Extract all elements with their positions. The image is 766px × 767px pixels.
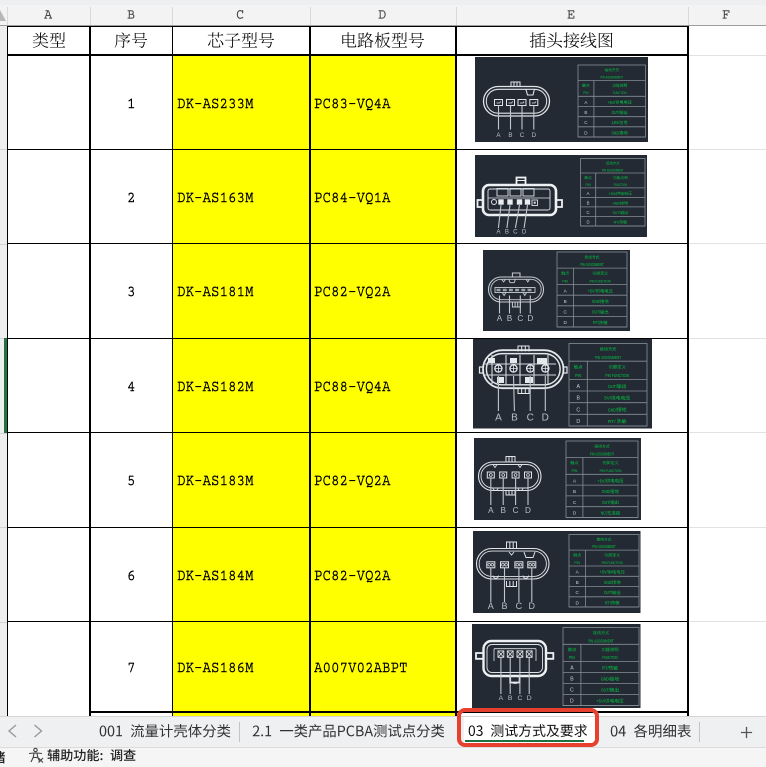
- svg-text:OUT/: OUT/: [613, 210, 621, 215]
- svg-text:B: B: [501, 601, 507, 611]
- svg-text:C: C: [576, 407, 580, 413]
- svg-text:+5V/: +5V/: [596, 699, 605, 704]
- svg-text:C: C: [573, 499, 577, 505]
- svg-text:D: D: [542, 413, 549, 424]
- svg-text:+5V/: +5V/: [600, 569, 609, 574]
- svg-text:PIN: PIN: [574, 560, 580, 564]
- svg-text:GND/: GND/: [608, 407, 617, 413]
- svg-text:A: A: [584, 99, 587, 104]
- svg-text:C: C: [517, 314, 523, 323]
- svg-text:A: A: [488, 601, 494, 611]
- svg-text:B: B: [507, 314, 513, 323]
- svg-text:OUT/: OUT/: [601, 688, 610, 693]
- svg-text:GND/: GND/: [601, 677, 610, 682]
- svg-text:PIN ASSIGNMENT: PIN ASSIGNMENT: [602, 168, 624, 172]
- svg-text:RT/: RT/: [605, 600, 612, 605]
- svg-text:PIN ASSIGNMENT: PIN ASSIGNMENT: [580, 262, 604, 267]
- svg-text:C: C: [564, 310, 568, 315]
- svg-text:B: B: [570, 677, 574, 683]
- svg-text:D: D: [576, 600, 580, 605]
- svg-text:B: B: [576, 396, 580, 402]
- svg-text:RT/: RT/: [614, 220, 620, 225]
- svg-text:PIN FUNCTION: PIN FUNCTION: [602, 560, 623, 564]
- svg-text:D: D: [573, 510, 577, 516]
- svg-text:B: B: [508, 132, 512, 139]
- svg-text:D: D: [564, 320, 568, 325]
- svg-text:D: D: [587, 220, 590, 225]
- svg-text:RT/: RT/: [608, 419, 617, 425]
- svg-text:FUNCTION: FUNCTION: [602, 655, 617, 660]
- svg-text:B: B: [576, 579, 579, 584]
- svg-text:B: B: [587, 201, 590, 206]
- svg-text:FUNCTION: FUNCTION: [614, 183, 627, 187]
- svg-text:D: D: [529, 601, 536, 611]
- svg-text:PIN: PIN: [583, 91, 589, 95]
- svg-text:PIN: PIN: [575, 373, 581, 378]
- svg-text:A: A: [499, 695, 504, 702]
- svg-text:RT/: RT/: [593, 320, 600, 325]
- svg-text:PIN ASSIGNMENT: PIN ASSIGNMENT: [595, 355, 621, 360]
- svg-text:B: B: [508, 695, 513, 702]
- svg-text:FUNCTION: FUNCTION: [613, 91, 627, 95]
- svg-text:PIN ASSIGNMENT: PIN ASSIGNMENT: [590, 451, 614, 456]
- svg-text:OUT/: OUT/: [602, 499, 611, 504]
- svg-text:C: C: [570, 688, 574, 694]
- svg-text:C: C: [587, 210, 590, 215]
- svg-text:5V/: 5V/: [604, 396, 611, 402]
- svg-text:PIN: PIN: [586, 183, 592, 187]
- svg-text:B: B: [564, 299, 567, 304]
- svg-text:D: D: [570, 699, 574, 705]
- svg-text:+5V/: +5V/: [597, 478, 606, 483]
- svg-text:RT/: RT/: [602, 666, 609, 671]
- svg-text:+5V/: +5V/: [588, 289, 597, 294]
- svg-text:D: D: [522, 229, 527, 236]
- svg-text:C: C: [527, 413, 534, 424]
- svg-text:A: A: [488, 506, 494, 515]
- svg-text:D: D: [527, 314, 533, 323]
- svg-text:A: A: [495, 413, 502, 424]
- svg-text:B: B: [505, 229, 509, 236]
- svg-text:+5V/: +5V/: [609, 191, 617, 196]
- svg-text:OUT/: OUT/: [592, 310, 601, 315]
- svg-text:A: A: [587, 191, 590, 196]
- svg-text:PIN FUNCTION: PIN FUNCTION: [600, 467, 622, 472]
- svg-text:PIN ASSIGNMENT: PIN ASSIGNMENT: [588, 638, 614, 643]
- svg-text:D: D: [576, 419, 580, 425]
- svg-text:A: A: [497, 314, 503, 323]
- svg-text:D: D: [532, 132, 537, 139]
- svg-text:GND/: GND/: [612, 130, 620, 135]
- svg-text:PIN: PIN: [572, 467, 578, 472]
- svg-text:B: B: [573, 489, 576, 495]
- svg-text:C: C: [576, 590, 580, 595]
- svg-text:C: C: [517, 695, 522, 702]
- svg-text:PIN FUNCTION: PIN FUNCTION: [590, 279, 611, 283]
- svg-text:C: C: [513, 229, 518, 236]
- svg-text:LIN/: LIN/: [612, 120, 621, 125]
- svg-text:GND/: GND/: [604, 579, 613, 584]
- svg-text:+5V/: +5V/: [608, 99, 617, 104]
- svg-text:GND/: GND/: [613, 201, 621, 206]
- svg-text:D: D: [525, 506, 531, 515]
- svg-text:B: B: [511, 413, 518, 424]
- svg-text:OUT/: OUT/: [604, 590, 613, 595]
- svg-text:OUT/: OUT/: [612, 110, 620, 115]
- svg-text:PIN: PIN: [569, 655, 575, 660]
- svg-text:A: A: [570, 666, 574, 672]
- svg-text:D: D: [527, 695, 532, 702]
- svg-text:PIN ASSIGNMENT: PIN ASSIGNMENT: [600, 74, 623, 79]
- svg-text:B: B: [500, 506, 506, 515]
- svg-text:OUT/: OUT/: [608, 384, 617, 390]
- svg-text:C: C: [513, 506, 519, 515]
- svg-text:C: C: [516, 601, 523, 611]
- svg-text:GND/: GND/: [602, 489, 611, 494]
- svg-text:PIN: PIN: [562, 279, 568, 283]
- svg-text:B: B: [584, 110, 587, 115]
- svg-text:NC/: NC/: [601, 510, 608, 515]
- svg-text:PIN FUNCTION: PIN FUNCTION: [605, 373, 629, 378]
- svg-text:PIN ASSIGNMENT: PIN ASSIGNMENT: [592, 544, 616, 549]
- svg-text:GND/: GND/: [592, 299, 601, 304]
- svg-text:A: A: [576, 384, 580, 390]
- svg-text:C: C: [520, 132, 525, 139]
